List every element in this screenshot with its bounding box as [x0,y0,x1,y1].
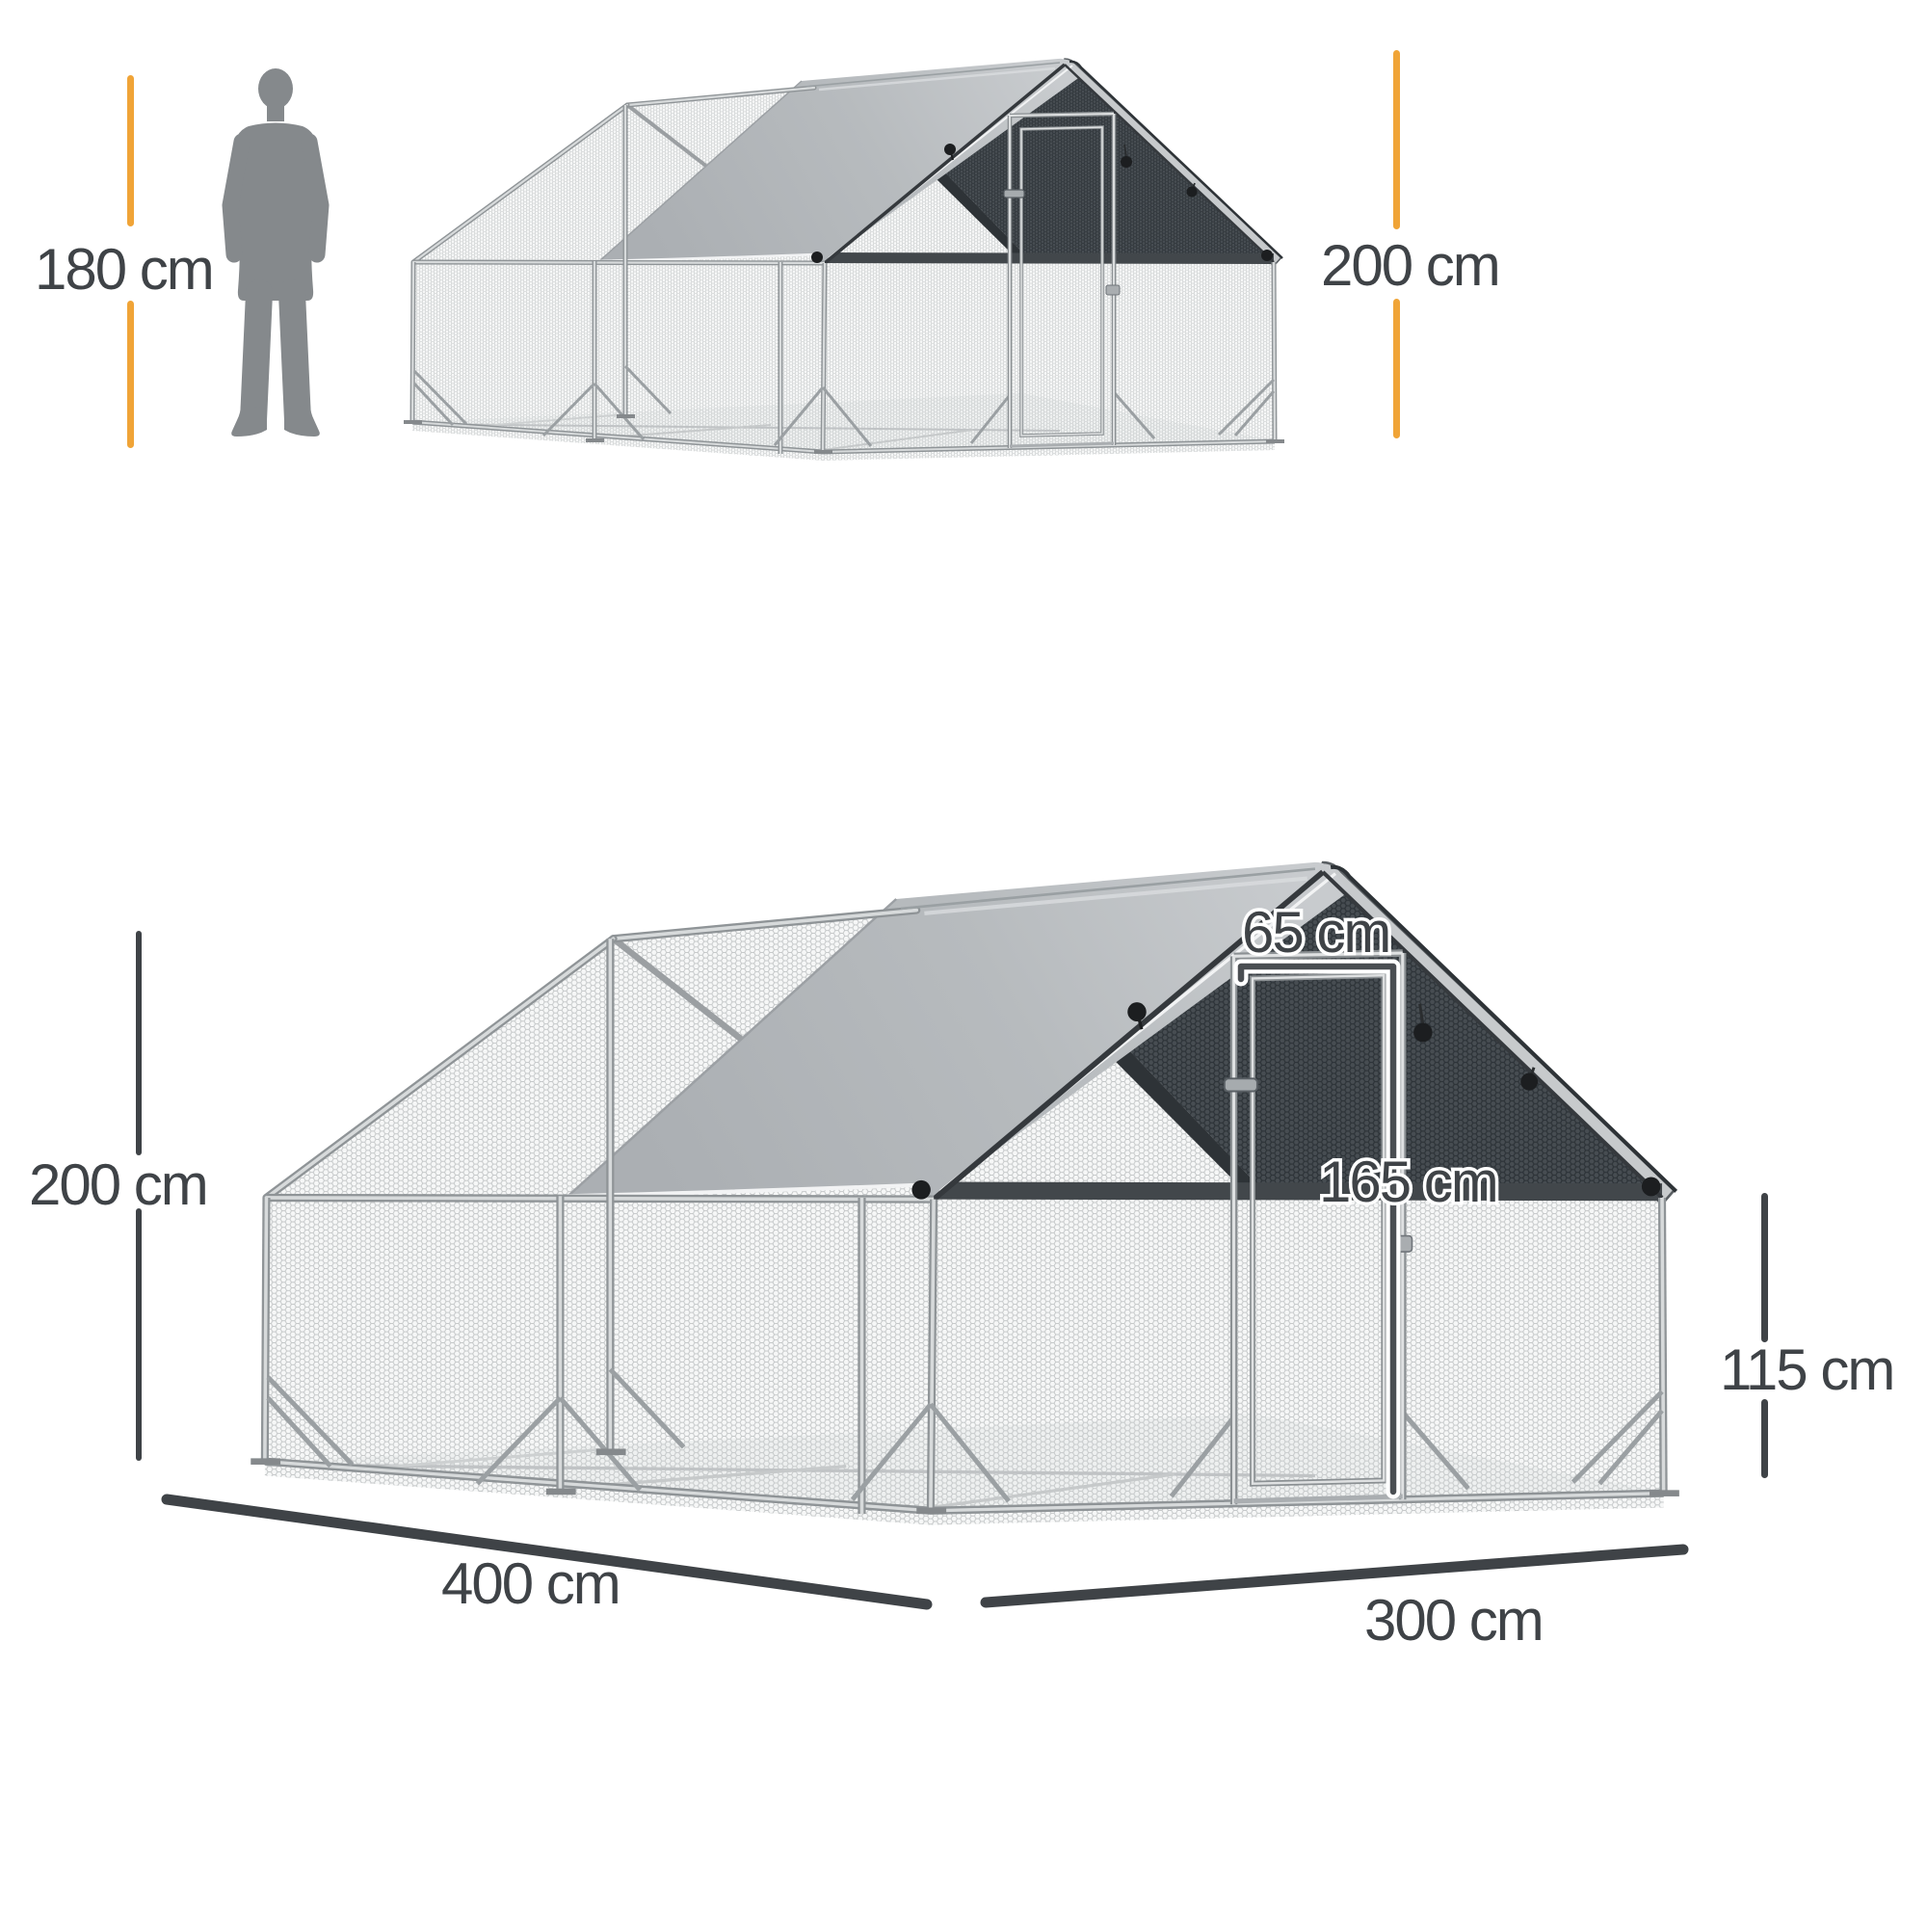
svg-text:115 cm: 115 cm [1720,1337,1893,1402]
svg-text:165 cm: 165 cm [1319,1150,1497,1214]
svg-text:200 cm: 200 cm [1321,233,1499,298]
svg-text:200 cm: 200 cm [29,1152,207,1217]
svg-text:300 cm: 300 cm [1364,1588,1543,1653]
svg-text:65 cm: 65 cm [1242,900,1389,965]
svg-text:400 cm: 400 cm [441,1551,620,1616]
svg-text:180 cm: 180 cm [35,237,213,302]
